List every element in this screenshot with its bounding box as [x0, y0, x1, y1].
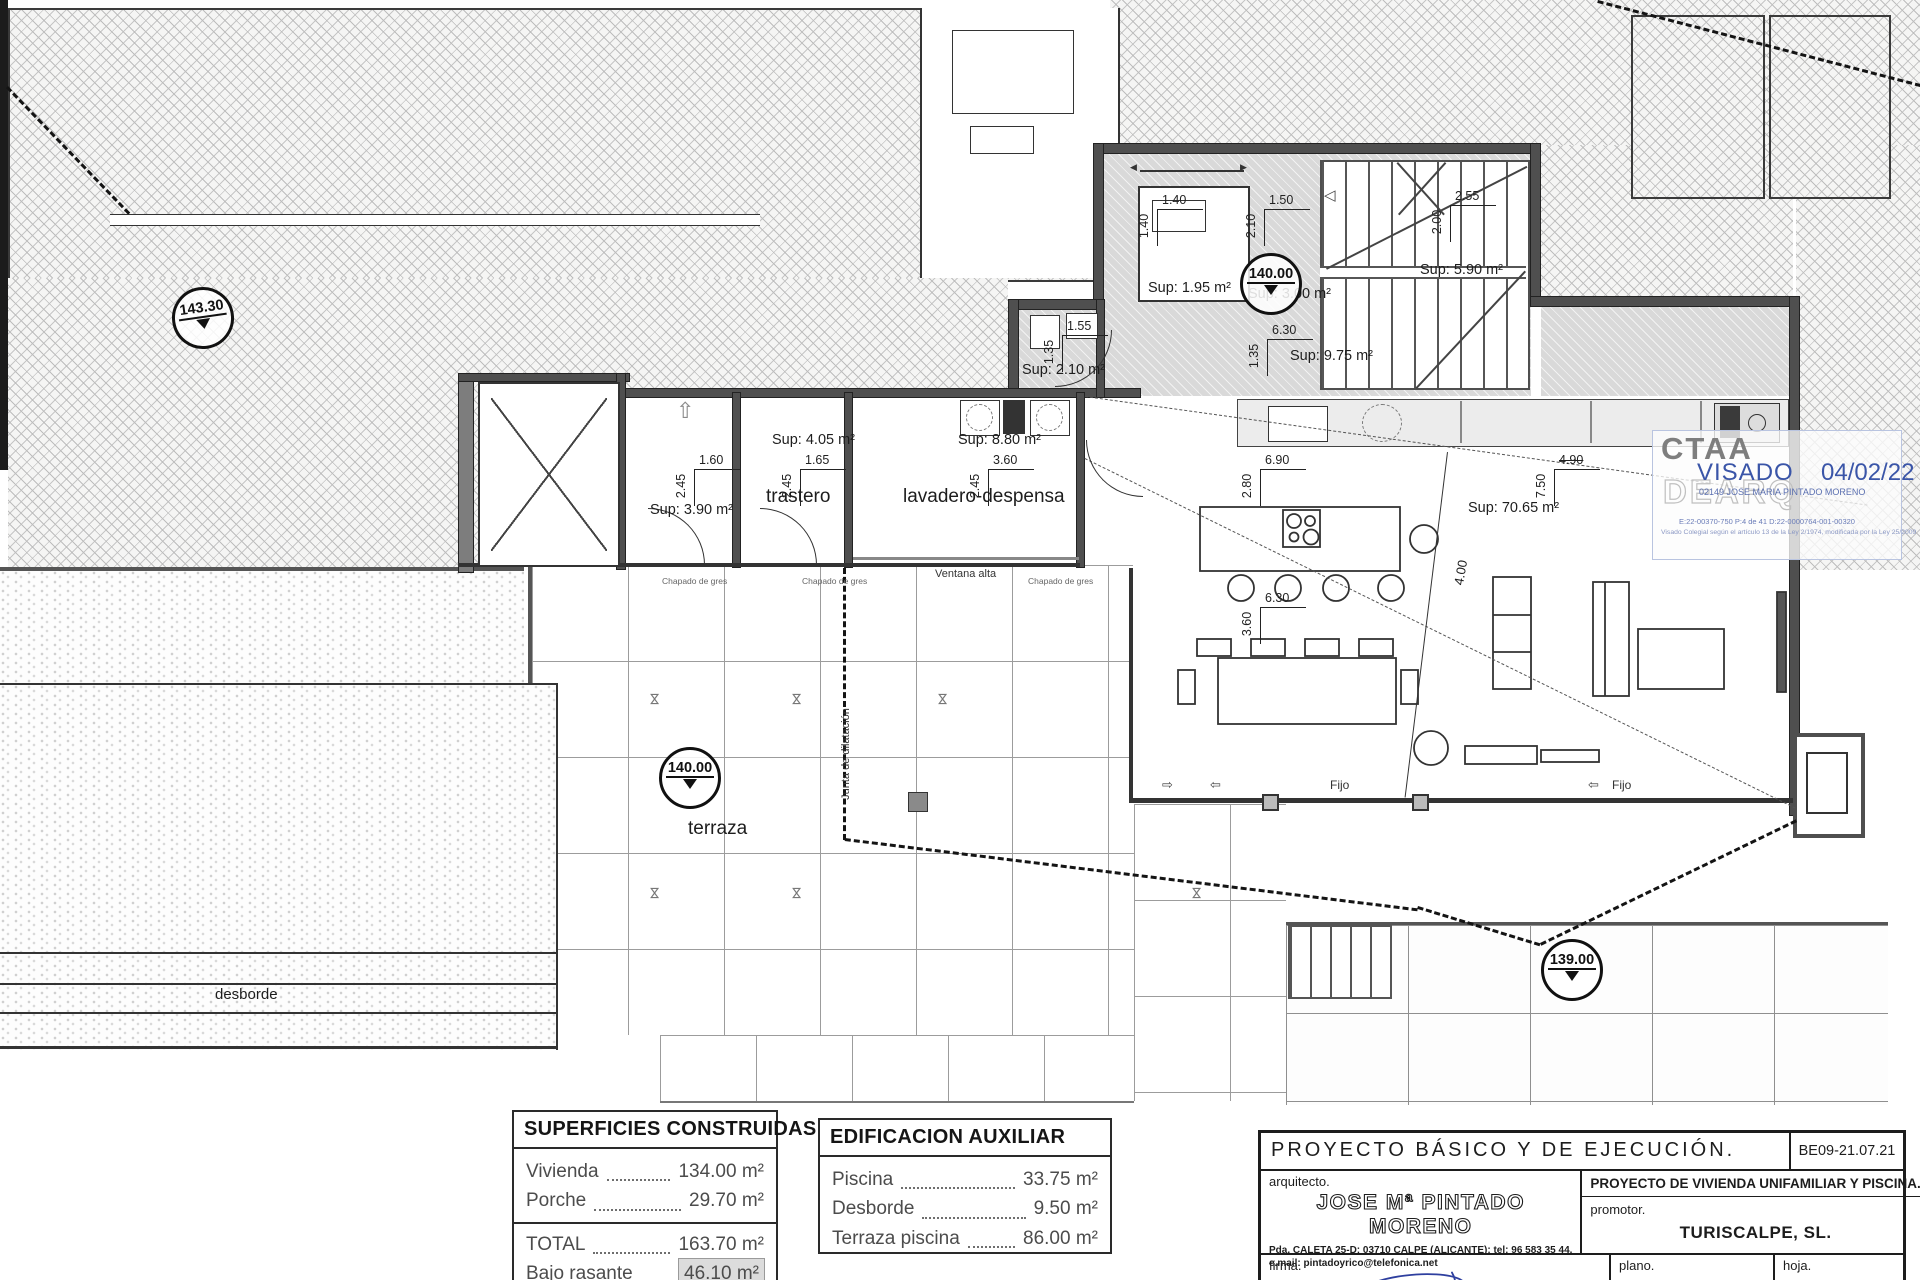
- sup-escalera: Sup: 5.90 m²: [1420, 262, 1503, 278]
- wall: [1530, 143, 1541, 307]
- sup-lavadero: Sup: 8.80 m²: [958, 432, 1041, 448]
- dot-leader: [593, 1252, 670, 1254]
- expansion-joint: [110, 214, 760, 226]
- covered-strip-floor: [1541, 307, 1789, 396]
- area-label-desborde: desborde: [215, 986, 278, 1003]
- terrace-tiles-step: [660, 1035, 1134, 1103]
- project-description: PROYECTO DE VIVIENDA UNIFAMILIAR Y PISCI…: [1582, 1171, 1920, 1197]
- slope-marker-icon: [646, 887, 664, 900]
- project-title: PROYECTO BÁSICO Y DE EJECUCIÓN.: [1261, 1133, 1789, 1169]
- dot-leader: [594, 1209, 681, 1211]
- row-name: Vivienda: [526, 1157, 599, 1186]
- row-value: 46.10 m²: [679, 1259, 764, 1280]
- roof-detail-rect: [970, 126, 1034, 154]
- label-chapado: Chapado de gres: [1028, 576, 1093, 586]
- row-name: Terraza piscina: [832, 1224, 960, 1253]
- table-row: Vivienda 134.00 m²: [526, 1157, 764, 1186]
- row-value: 9.50 m²: [1034, 1194, 1098, 1223]
- washer-drum-icon: [966, 404, 993, 431]
- label-chapado: Chapado de gres: [802, 576, 867, 586]
- slope-marker-icon: [934, 693, 952, 706]
- wall: [458, 373, 630, 382]
- pool-water: [0, 683, 558, 1050]
- sliding-door-arrow-icon: ◀: [1130, 162, 1137, 173]
- wall: [1093, 143, 1104, 310]
- row-name: Porche: [526, 1186, 586, 1215]
- chair: [1178, 670, 1195, 704]
- pouf: [1414, 731, 1448, 765]
- room-label-lavadero: lavadero-despensa: [903, 486, 1065, 508]
- stamp-legal: Visado Colegial según el artículo 13 de …: [1661, 529, 1916, 536]
- signature: [1316, 1267, 1526, 1280]
- sheet-edge-left: [0, 0, 8, 470]
- superficies-table: SUPERFICIES CONSTRUIDAS Vivienda 134.00 …: [512, 1110, 778, 1280]
- table-row: TOTAL 163.70 m²: [526, 1230, 764, 1259]
- wall: [1530, 296, 1800, 307]
- elevation-marker-lower: 139.00: [1541, 939, 1603, 1001]
- partition-wall: [1076, 392, 1085, 568]
- tv-bench: [1465, 746, 1537, 764]
- row-value: 29.70 m²: [689, 1186, 764, 1215]
- elevation-marker-entry: 140.00: [1240, 253, 1302, 315]
- elevation-value: 140.00: [1247, 266, 1295, 285]
- sofa: [1593, 582, 1629, 696]
- area-label-terraza: terraza: [688, 818, 747, 840]
- visado-stamp: DEARQ CTAA VISADO 04/02/22 02149 JOSE MA…: [1652, 430, 1902, 560]
- porch-window: [1806, 752, 1848, 814]
- slide-arrow-icon: [1588, 776, 1599, 794]
- dot-leader: [901, 1187, 1015, 1189]
- elevation-triangle-icon: [1565, 971, 1579, 988]
- dining-table: [1218, 658, 1396, 724]
- hatch-block-top-right-1: [1631, 15, 1765, 199]
- table-row: Terraza piscina 86.00 m²: [832, 1224, 1098, 1253]
- partition-wall: [732, 392, 741, 568]
- row-name: Piscina: [832, 1165, 893, 1194]
- exterior-stairs: [1288, 925, 1392, 999]
- slope-marker-icon: [646, 693, 664, 706]
- slope-marker-icon: [1188, 887, 1206, 900]
- pool-edge-line: [0, 1012, 556, 1014]
- table-row: Piscina 33.75 m²: [832, 1165, 1098, 1194]
- sup-aseo: Sup: 1.95 m²: [1148, 280, 1231, 296]
- label-fijo: Fijo: [1330, 778, 1349, 792]
- elevation-value: 140.00: [666, 760, 714, 779]
- pool-edge-line: [0, 952, 556, 954]
- elevation-triangle-icon: [1264, 285, 1278, 302]
- table-row: Porche 29.70 m²: [526, 1186, 764, 1215]
- stamp-date: 04/02/22: [1821, 459, 1914, 487]
- promotor-name: TURISCALPE, SL.: [1582, 1223, 1920, 1243]
- sliding-door-arrow-icon: ▶: [1240, 162, 1247, 173]
- elevation-triangle-icon: [683, 779, 697, 796]
- dryer-drum-icon: [1036, 404, 1063, 431]
- sink-round: [1410, 525, 1438, 553]
- row-value: 163.70 m²: [678, 1230, 764, 1259]
- wall: [1008, 299, 1019, 398]
- auxiliar-table: EDIFICACION AUXILIAR Piscina 33.75 m² De…: [818, 1118, 1112, 1254]
- window-sill: [853, 557, 1079, 560]
- junta-marker: [908, 792, 928, 812]
- door-arc: [1086, 440, 1143, 497]
- hoja-label: hoja.: [1783, 1258, 1895, 1273]
- dot-leader: [968, 1246, 1015, 1248]
- terrace-tiles-east: [1134, 804, 1286, 1101]
- terrace-tiles: [528, 565, 1138, 1035]
- plano-label: plano.: [1619, 1258, 1765, 1273]
- slope-marker-icon: [788, 887, 806, 900]
- wall: [1008, 299, 1104, 310]
- slide-arrow-icon: [1162, 776, 1173, 794]
- title-block: PROYECTO BÁSICO Y DE EJECUCIÓN. BE09-21.…: [1258, 1130, 1906, 1280]
- boiler: [1003, 400, 1025, 434]
- row-name: Desborde: [832, 1194, 914, 1223]
- table-row: Desborde 9.50 m²: [832, 1194, 1098, 1223]
- slope-marker-icon: [788, 693, 806, 706]
- row-name: Bajo rasante: [526, 1259, 633, 1280]
- slide-arrow-icon: [1210, 776, 1221, 794]
- label-fijo: Fijo: [1612, 778, 1631, 792]
- sup-pasillo: Sup: 9.75 m²: [1290, 348, 1373, 364]
- hatch-block-top-right-2: [1769, 15, 1891, 199]
- elevation-marker-terrace: 140.00: [659, 747, 721, 809]
- shaft-void: [478, 382, 620, 567]
- room-label-trastero: trastero: [766, 486, 830, 508]
- auxiliar-title: EDIFICACION AUXILIAR: [820, 1120, 1110, 1157]
- coffee-table: [1638, 629, 1724, 689]
- sup-bano: Sup: 3.90 m²: [650, 502, 733, 518]
- elevation-value: 143.30: [176, 296, 226, 321]
- sup-lavanderia: Sup: 2.10 m²: [1022, 362, 1105, 378]
- chair: [1197, 639, 1231, 656]
- shelving-unit: [1493, 577, 1531, 689]
- wall: [1093, 143, 1541, 154]
- label-chapado: Chapado de gres: [662, 576, 727, 586]
- stairs-arrow-icon: [1324, 186, 1336, 205]
- sliding-door-line: [1140, 170, 1244, 172]
- floor-plan-sheet: ◀ ▶: [0, 0, 1920, 1280]
- row-name: TOTAL: [526, 1230, 585, 1259]
- table-row: Bajo rasante 46.10 m²: [526, 1259, 764, 1280]
- sup-trastero: Sup: 4.05 m²: [772, 432, 855, 448]
- roof-detail-rect: [952, 30, 1074, 114]
- row-value: 86.00 m²: [1023, 1224, 1098, 1253]
- label-junta-dilatacion: Junta de dilatación: [840, 708, 852, 800]
- dot-leader: [607, 1179, 671, 1181]
- partition-wall: [844, 392, 853, 568]
- stamp-refs: E:22-00370-750 P:4 de 41 D:22-0000764-00…: [1679, 517, 1855, 526]
- wall: [616, 388, 1141, 398]
- pool-edge-line: [0, 1046, 558, 1049]
- sup-salon: Sup: 70.65 m²: [1468, 500, 1559, 516]
- project-code: BE09-21.07.21: [1789, 1133, 1903, 1169]
- vestibule-fixture: [1152, 200, 1206, 232]
- up-arrow-icon: [676, 398, 694, 424]
- wall-tv: [1777, 592, 1786, 692]
- elevation-triangle-icon: [196, 318, 212, 337]
- pool-edge-line: [0, 983, 556, 985]
- elevation-value: 139.00: [1548, 952, 1596, 971]
- promotor-label: promotor.: [1590, 1202, 1645, 1217]
- arquitecto-name: JOSE Mª PINTADO MORENO: [1269, 1191, 1572, 1239]
- row-value: 33.75 m²: [1023, 1165, 1098, 1194]
- arquitecto-label: arquitecto.: [1269, 1174, 1572, 1189]
- gravel-band: [0, 567, 524, 687]
- wall-stone: [458, 373, 474, 573]
- superficies-title: SUPERFICIES CONSTRUIDAS: [514, 1112, 776, 1149]
- stamp-visado: VISADO: [1697, 459, 1794, 487]
- bar-stool: [1228, 575, 1254, 601]
- stamp-colegiado: 02149 JOSE MARIA PINTADO MORENO: [1699, 487, 1865, 497]
- row-value: 134.00 m²: [678, 1157, 764, 1186]
- label-ventana-alta: Ventana alta: [935, 568, 996, 580]
- dot-leader: [922, 1217, 1025, 1219]
